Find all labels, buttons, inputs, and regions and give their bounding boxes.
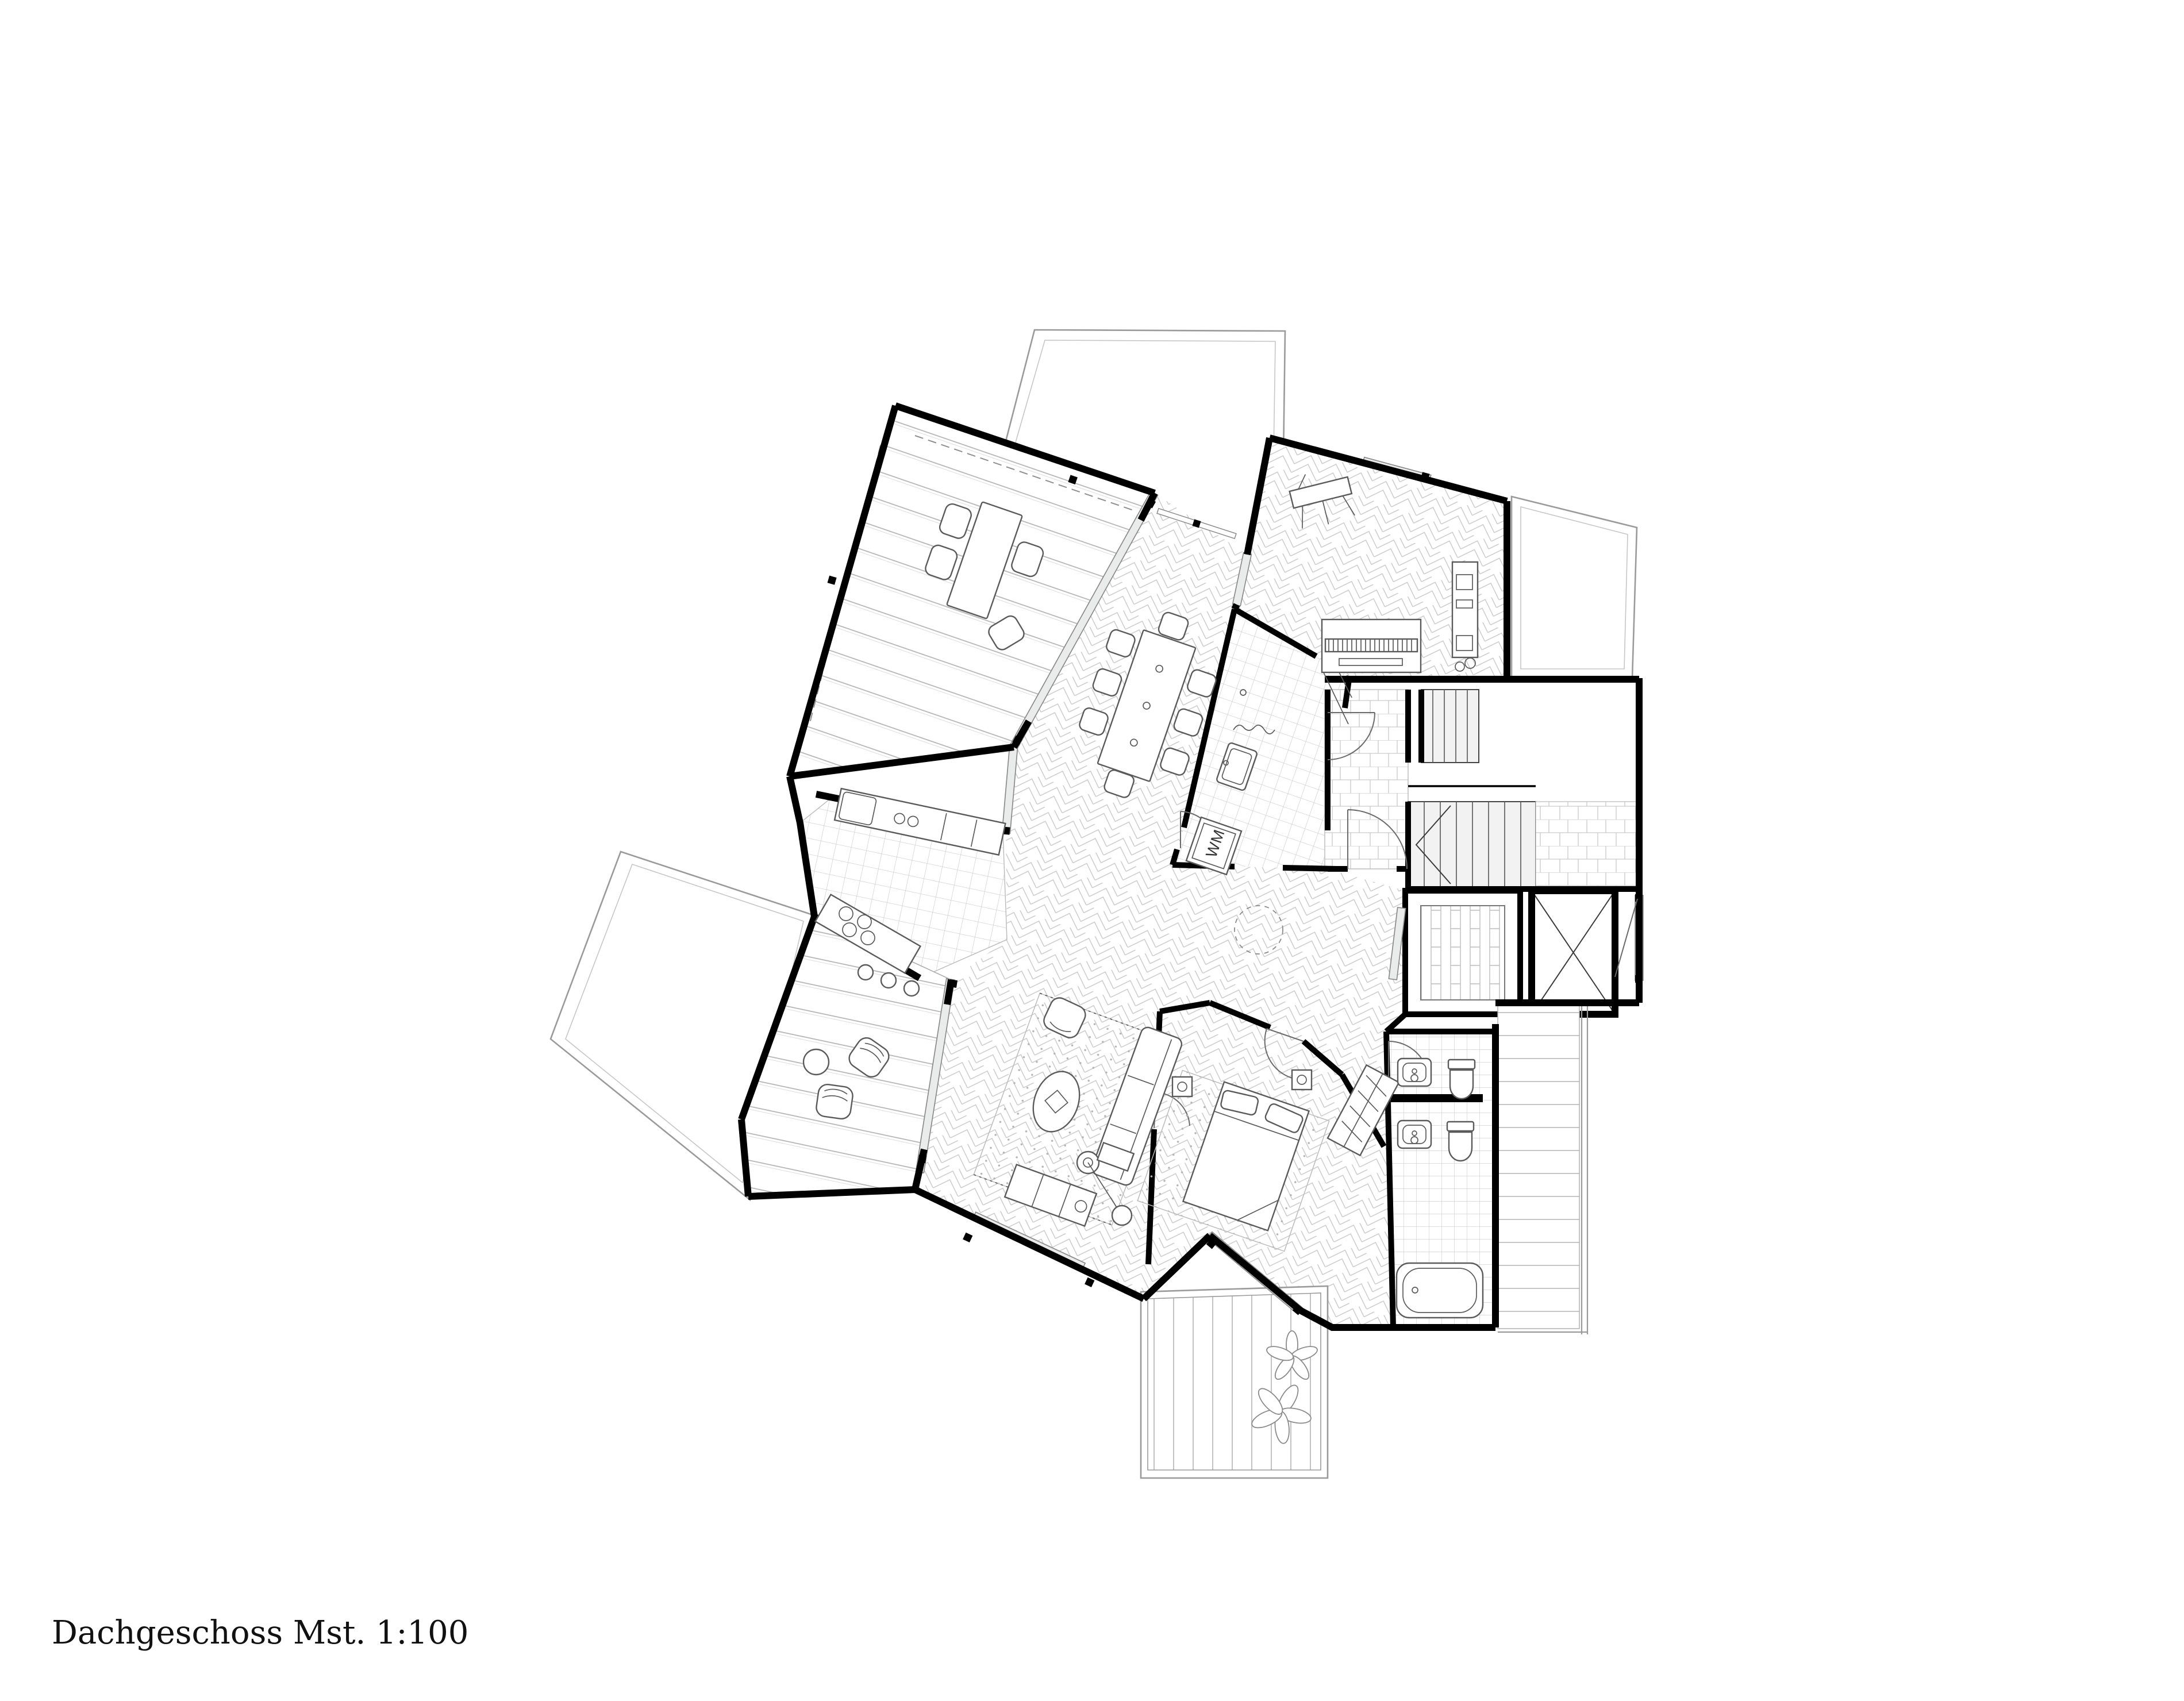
- round-side-table: [803, 1049, 829, 1075]
- stair-landing: [1536, 802, 1639, 888]
- floor-plan-page: WM: [0, 0, 2184, 1701]
- nightstand-left: [1172, 1077, 1192, 1096]
- floor-plan-canvas: WM: [0, 0, 2184, 1701]
- nightstand-right: [1292, 1070, 1312, 1090]
- sink-1: [1398, 1059, 1431, 1086]
- sauna-cabin: [1405, 891, 1520, 1014]
- media-sideboard: [1452, 562, 1478, 671]
- stairs-upper-flight: [1421, 690, 1479, 763]
- elevator-shaft: [1532, 891, 1615, 1014]
- roof-outline-top-right: [1512, 497, 1637, 678]
- bathtub: [1397, 1263, 1483, 1318]
- balcony-south: [1141, 1286, 1328, 1478]
- sink-2: [1398, 1121, 1431, 1148]
- piano: [1322, 619, 1421, 672]
- bar-stools: [858, 965, 873, 980]
- stairs-lower-flight: [1408, 802, 1536, 888]
- plan-title: Dachgeschoss Mst. 1:100: [52, 1614, 468, 1652]
- toilet-2: [1447, 1122, 1474, 1161]
- room-entrance: [1325, 690, 1408, 869]
- toilet-1: [1448, 1060, 1475, 1099]
- balcony-east: [1498, 1005, 1587, 1334]
